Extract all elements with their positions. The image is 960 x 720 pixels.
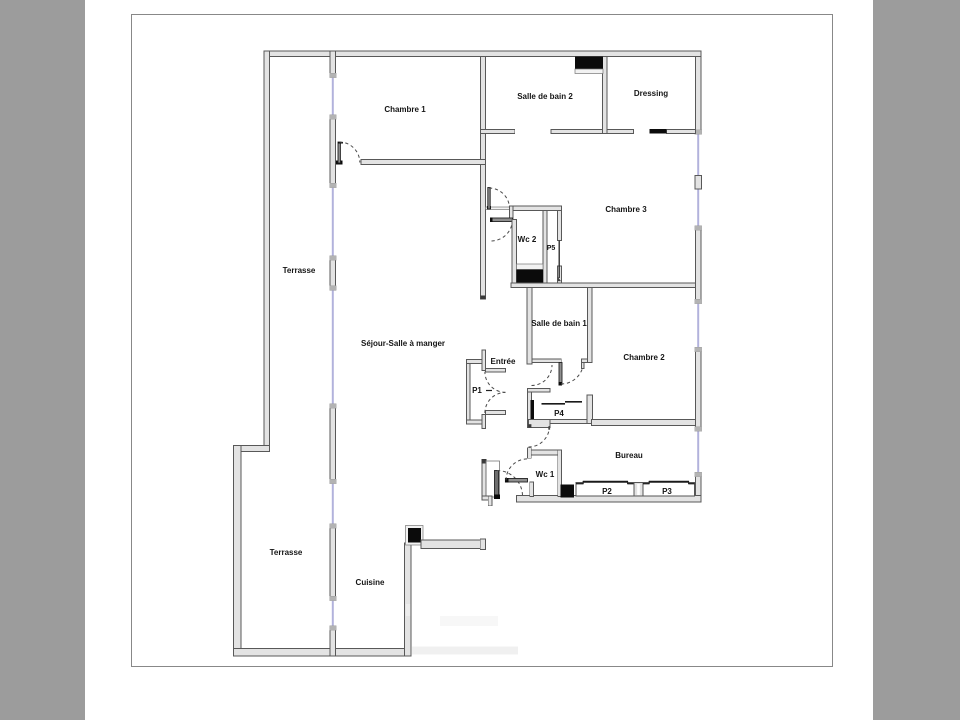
svg-text:Séjour-Salle à manger: Séjour-Salle à manger — [361, 339, 445, 348]
svg-text:Wc 1: Wc 1 — [536, 470, 555, 479]
svg-text:Wc 2: Wc 2 — [518, 235, 537, 244]
svg-text:Entrée: Entrée — [491, 357, 516, 366]
svg-text:P5: P5 — [547, 245, 556, 252]
svg-text:Dressing: Dressing — [634, 89, 668, 98]
svg-text:Bureau: Bureau — [615, 451, 643, 460]
svg-text:Salle de bain 1: Salle de bain 1 — [531, 319, 587, 328]
svg-text:Cuisine: Cuisine — [356, 578, 385, 587]
svg-text:Terrasse: Terrasse — [283, 266, 316, 275]
svg-text:P2: P2 — [602, 487, 612, 496]
svg-text:P4: P4 — [554, 409, 564, 418]
svg-text:Chambre 2: Chambre 2 — [623, 353, 665, 362]
svg-text:P3: P3 — [662, 487, 672, 496]
svg-text:Salle de bain 2: Salle de bain 2 — [517, 92, 573, 101]
svg-text:P1: P1 — [472, 386, 482, 395]
svg-text:Chambre 3: Chambre 3 — [605, 205, 647, 214]
svg-text:Terrasse: Terrasse — [270, 548, 303, 557]
svg-text:Chambre 1: Chambre 1 — [384, 105, 426, 114]
